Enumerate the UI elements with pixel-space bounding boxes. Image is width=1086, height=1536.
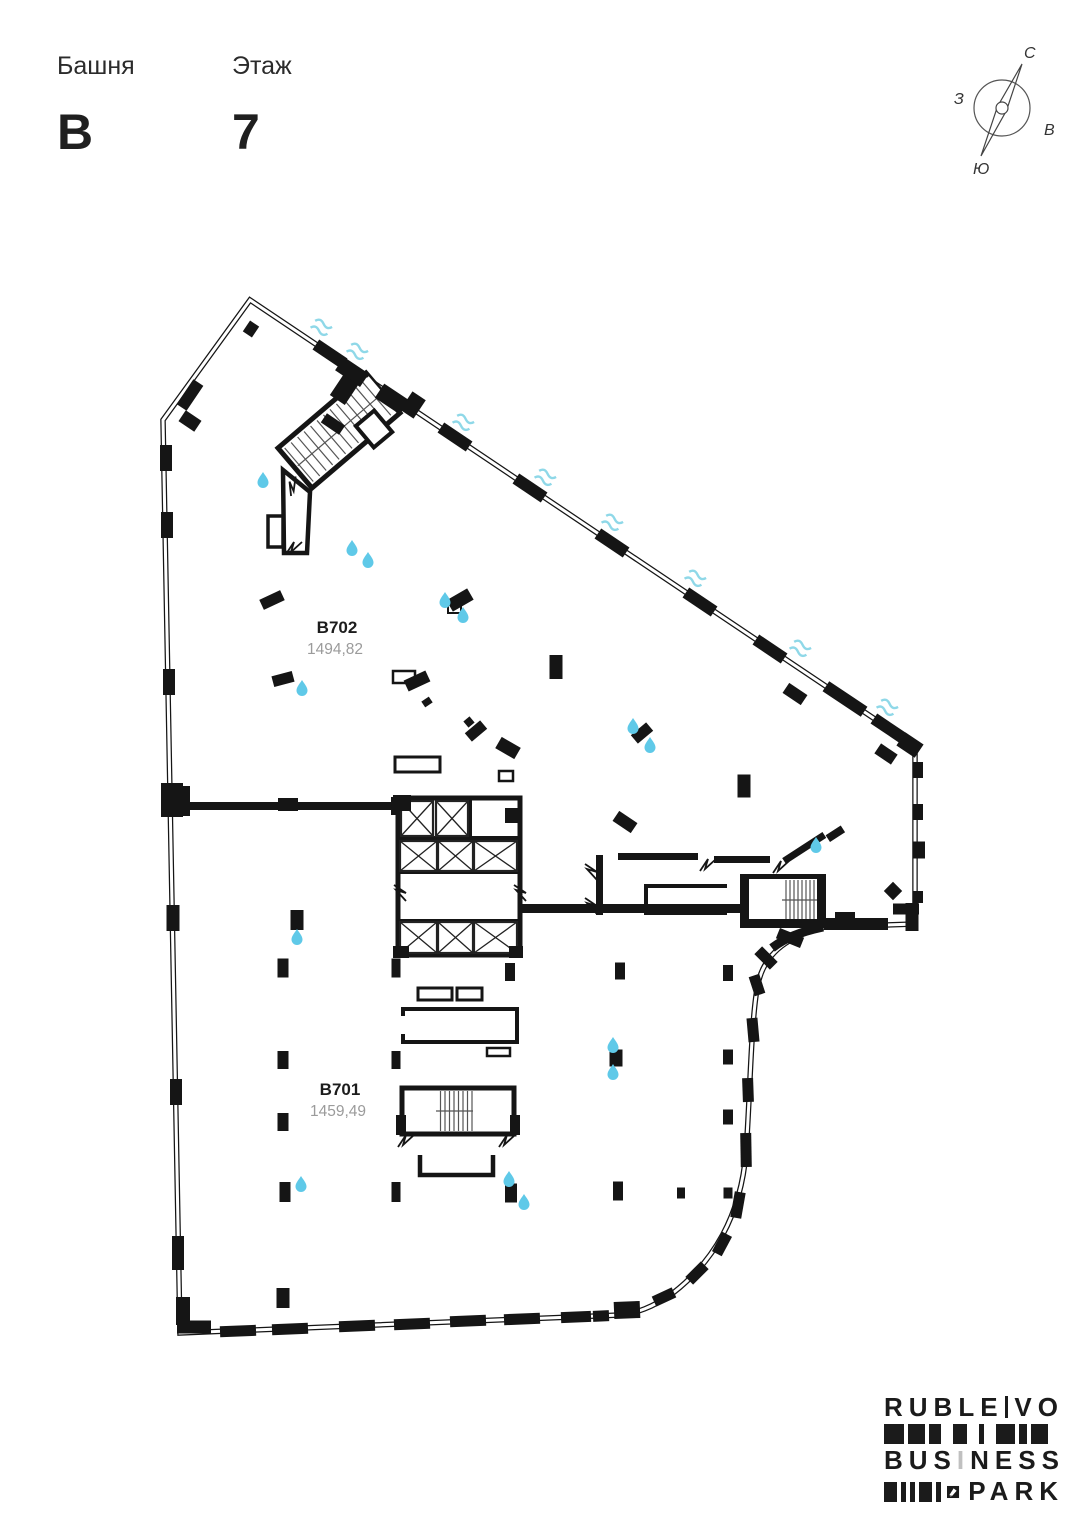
logo-bars-row-2 bbox=[884, 1482, 945, 1502]
ventilation-wave-icons bbox=[310, 318, 899, 717]
stair-core-bottom bbox=[396, 1088, 520, 1135]
logo-word-vo: VO bbox=[1014, 1394, 1064, 1420]
logo-bars-row bbox=[884, 1424, 1064, 1444]
logo-word-bus: BUS bbox=[884, 1447, 957, 1473]
unit-b701-id[interactable]: B701 bbox=[320, 1080, 361, 1099]
water-drop-icons bbox=[258, 472, 822, 1210]
logo-rublevo-business-park: RUBLEVO BUSINESS PARK bbox=[884, 1394, 1064, 1507]
door-symbols bbox=[283, 476, 789, 1147]
logo-pen-icon bbox=[947, 1482, 960, 1502]
unit-b702-id[interactable]: B702 bbox=[317, 618, 358, 637]
logo-word-park: PARK bbox=[968, 1476, 1064, 1507]
floor-plan-drawing: B702 1494,82 B701 1459,49 bbox=[0, 0, 1086, 1536]
logo-word-ruble: RUBLE bbox=[884, 1394, 1004, 1420]
unit-b701-area: 1459,49 bbox=[310, 1103, 366, 1120]
logo-line-3: PARK bbox=[884, 1476, 1064, 1507]
logo-square-block bbox=[1005, 1396, 1009, 1418]
shaft-boxes bbox=[268, 516, 513, 1056]
elevator-core bbox=[393, 795, 523, 958]
unit-b702-area: 1494,82 bbox=[307, 641, 363, 658]
unit-label-b701[interactable]: B701 1459,49 bbox=[310, 1080, 366, 1120]
unit-label-b702[interactable]: B702 1494,82 bbox=[307, 618, 363, 658]
perimeter-columns bbox=[160, 340, 925, 1338]
exterior-walls bbox=[163, 300, 915, 1333]
logo-line-1: RUBLEVO bbox=[884, 1394, 1064, 1420]
interior-columns bbox=[178, 321, 902, 1308]
floor-plan-page: Башня B Этаж 7 С Ю З В B702 1494,82 B7 bbox=[0, 0, 1086, 1536]
logo-letter-i: I bbox=[957, 1447, 970, 1473]
logo-line-2: BUSINESS bbox=[884, 1447, 1064, 1473]
stair-core-right bbox=[740, 874, 855, 928]
logo-word-ness: NESS bbox=[970, 1447, 1065, 1473]
